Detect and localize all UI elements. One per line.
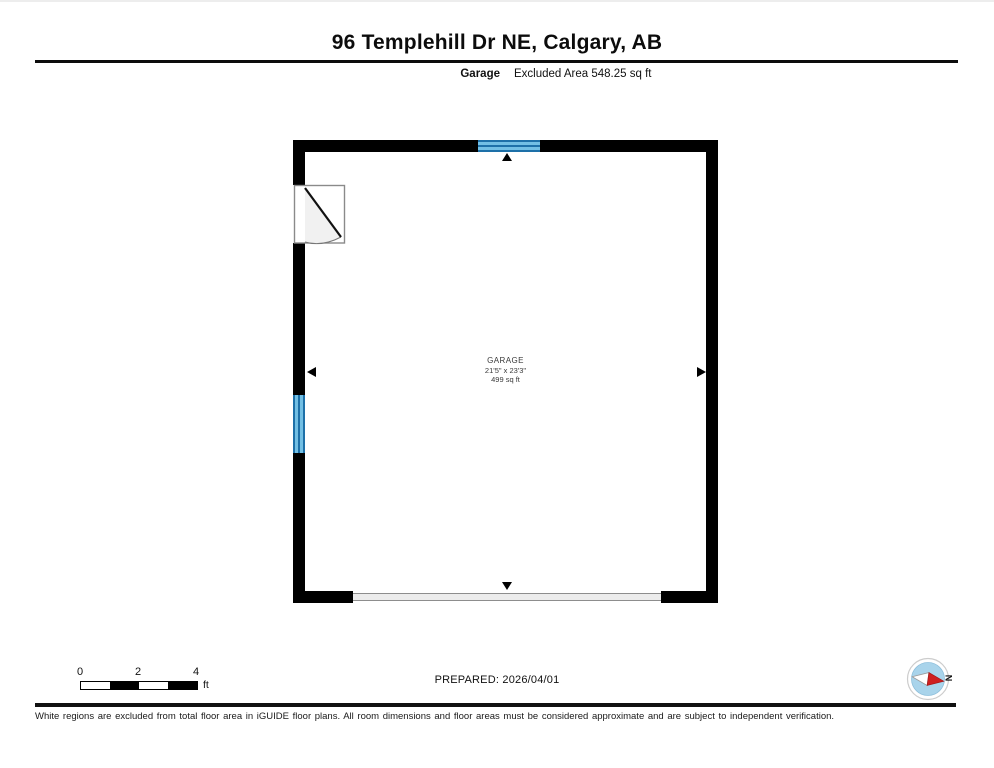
door-swing-icon bbox=[293, 180, 351, 250]
floor-plan: GARAGE 21'5" x 23'3" 499 sq ft bbox=[293, 140, 718, 603]
room-dimensions: 21'5" x 23'3" bbox=[293, 366, 718, 376]
compass: N bbox=[903, 655, 959, 705]
room-area: 499 sq ft bbox=[293, 375, 718, 385]
compass-north-label: N bbox=[943, 675, 953, 682]
footer-divider bbox=[35, 703, 956, 707]
window-top bbox=[478, 140, 540, 152]
wall-bottom-left-segment bbox=[293, 591, 353, 603]
room-name: GARAGE bbox=[293, 356, 718, 366]
floor-subtitle: Garage Excluded Area 548.25 sq ft bbox=[0, 68, 994, 83]
page-title: 96 Templehill Dr NE, Calgary, AB bbox=[0, 31, 994, 55]
window-left bbox=[293, 395, 305, 453]
floorplan-page: 96 Templehill Dr NE, Calgary, AB Garage … bbox=[0, 0, 994, 768]
wall-top-right-segment bbox=[540, 140, 718, 152]
prepared-date: PREPARED: 2026/04/01 bbox=[0, 674, 994, 686]
wall-bottom-right-segment bbox=[661, 591, 718, 603]
floor-label: Garage bbox=[460, 68, 500, 80]
wall-top-left-segment bbox=[293, 140, 478, 152]
wall-left-upper-segment bbox=[293, 140, 305, 185]
excluded-area-label: Excluded Area 548.25 sq ft bbox=[514, 68, 651, 80]
wall-left-lower-segment bbox=[293, 453, 305, 603]
title-divider bbox=[35, 60, 958, 63]
disclaimer-text: White regions are excluded from total fl… bbox=[35, 711, 965, 722]
garage-door bbox=[353, 593, 661, 601]
measure-arrow-up-icon bbox=[502, 153, 512, 161]
measure-arrow-down-icon bbox=[502, 582, 512, 590]
room-label: GARAGE 21'5" x 23'3" 499 sq ft bbox=[293, 356, 718, 385]
page-top-divider bbox=[0, 0, 994, 2]
